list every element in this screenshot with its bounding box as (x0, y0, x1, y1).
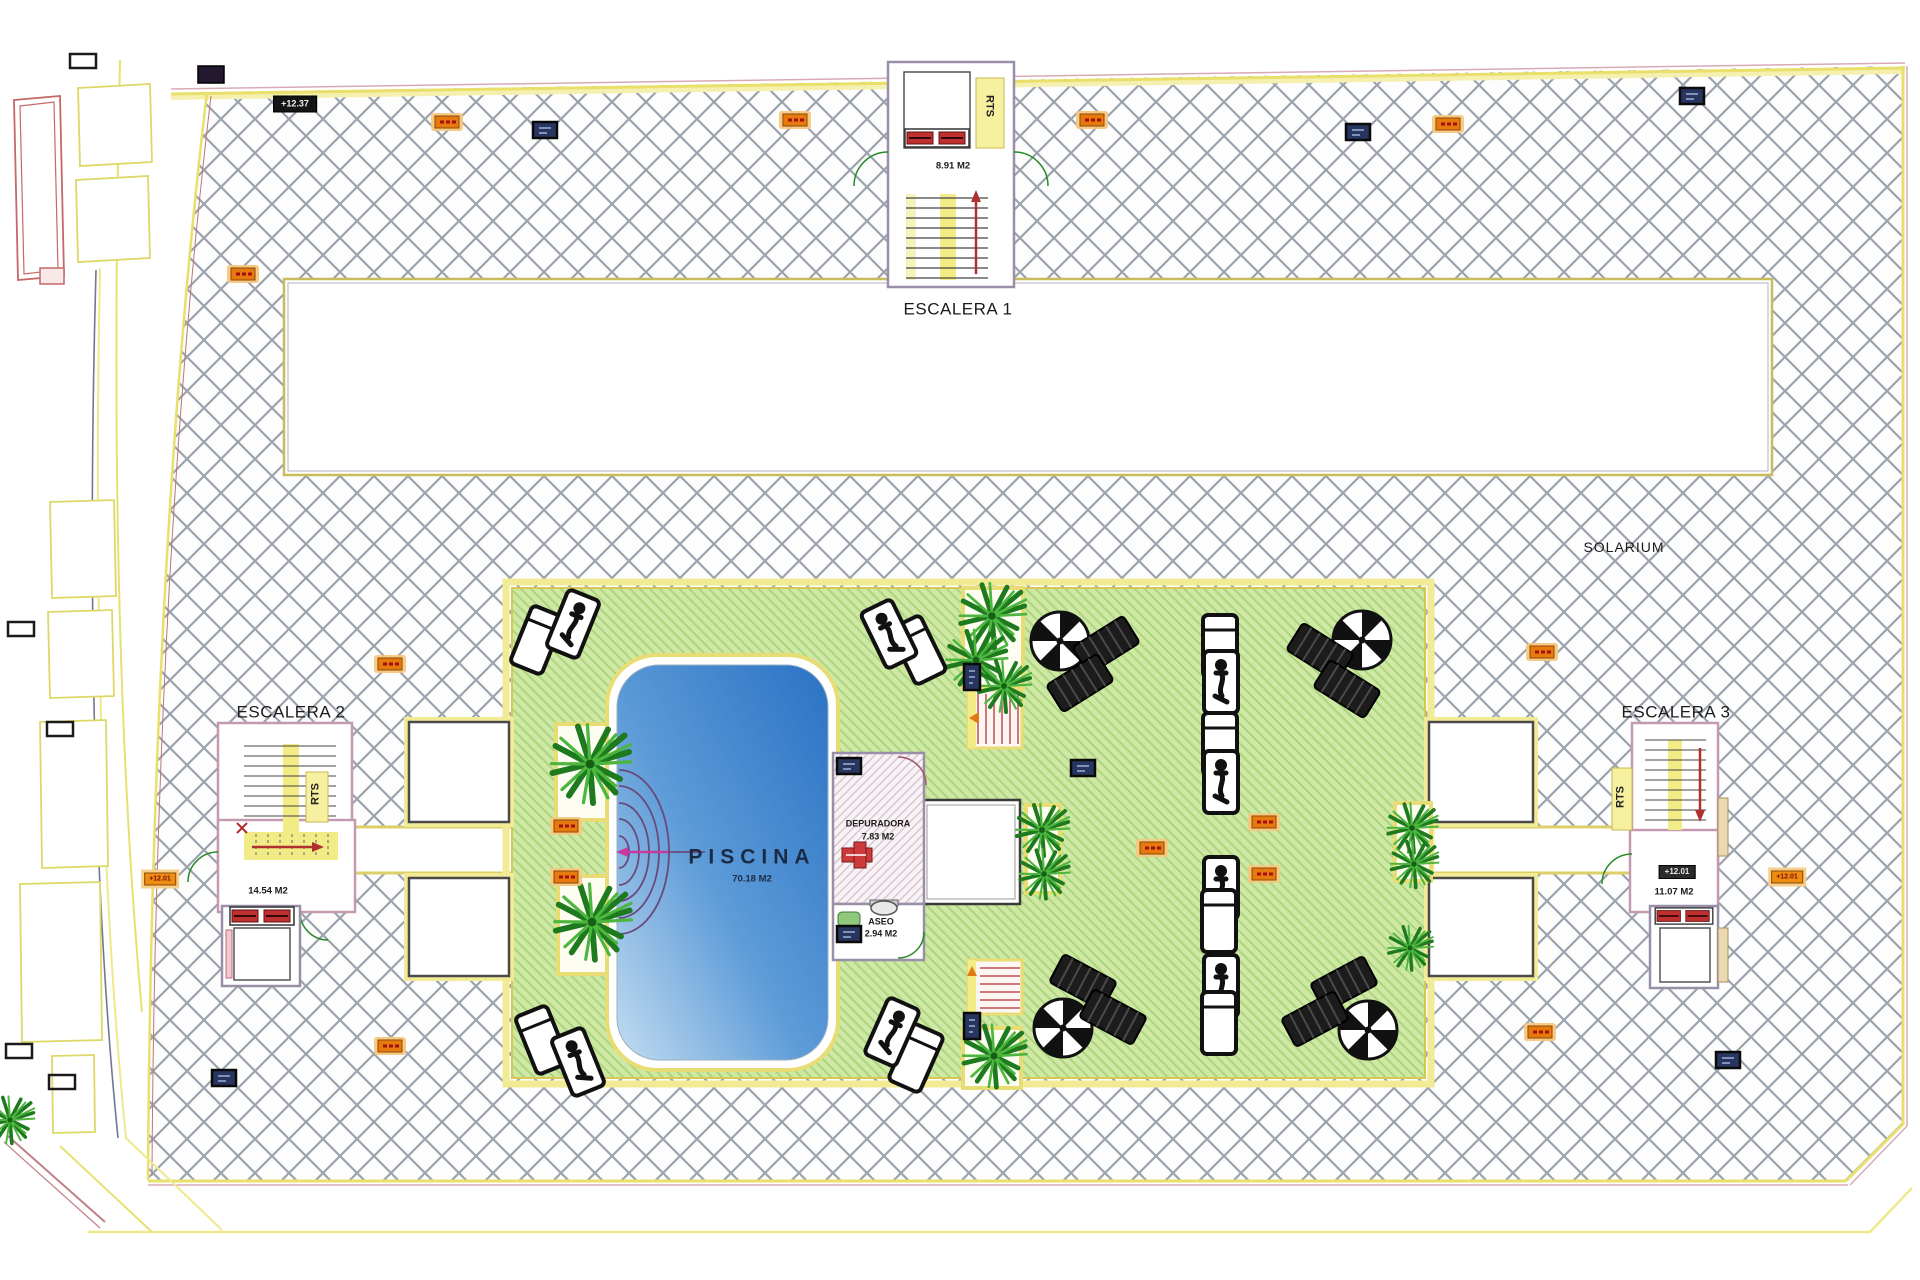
elevator-machinery-icon (1655, 908, 1713, 924)
rts-label-3: RTS (1616, 786, 1627, 808)
stairwell-2-title: ESCALERA 2 (237, 704, 346, 721)
deck-steps-bottom (967, 960, 1022, 1014)
elevator-machinery-icon (230, 907, 294, 925)
depuradora-area-label: 7.83 M2 (862, 833, 895, 842)
palm-tree-icon (0, 1093, 38, 1149)
pool-label: PISCINA (688, 847, 815, 868)
aseo-label: ASEO (868, 918, 894, 927)
pool-area-label: 70.18 M2 (732, 874, 772, 884)
depuradora-label: DEPURADORA (846, 820, 911, 829)
roof-void-opening (284, 279, 1772, 475)
stairwell-3-area-label: 11.07 M2 (1654, 887, 1693, 897)
level-marker-stairwell-3: +12.01 (1771, 871, 1803, 884)
stairwell-2-area-label: 14.54 M2 (248, 886, 288, 896)
stairwell-1-area-label: 8.91 M2 (936, 161, 970, 171)
reference-marker-black-icon (6, 1044, 32, 1058)
elevator-machinery-icon (905, 129, 969, 147)
toilet-icon (838, 912, 860, 926)
reference-marker-black-icon (8, 622, 34, 636)
level-marker-stairwell-2: +12.01 (144, 873, 176, 886)
rts-label-2: RTS (311, 783, 322, 805)
sink-icon (871, 901, 897, 915)
reference-marker-black-icon (70, 54, 96, 68)
plan-drawing (0, 0, 1920, 1280)
stairwell-3-title: ESCALERA 3 (1622, 704, 1731, 721)
depuradora-room (833, 753, 926, 904)
solarium-label: SOLARIUM (1583, 540, 1664, 554)
pergola (922, 800, 1020, 904)
level-tag-stairwell-3: +12.01 (1659, 865, 1696, 879)
level-tag-top: +12.37 (273, 96, 317, 113)
roof-floor-plan: ESCALERA 1 ESCALERA 2 ESCALERA 3 SOLARIU… (0, 0, 1920, 1280)
stairwell-1-title: ESCALERA 1 (904, 301, 1013, 318)
rts-label-1: RTS (984, 95, 995, 117)
aseo-area-label: 2.94 M2 (865, 930, 898, 939)
